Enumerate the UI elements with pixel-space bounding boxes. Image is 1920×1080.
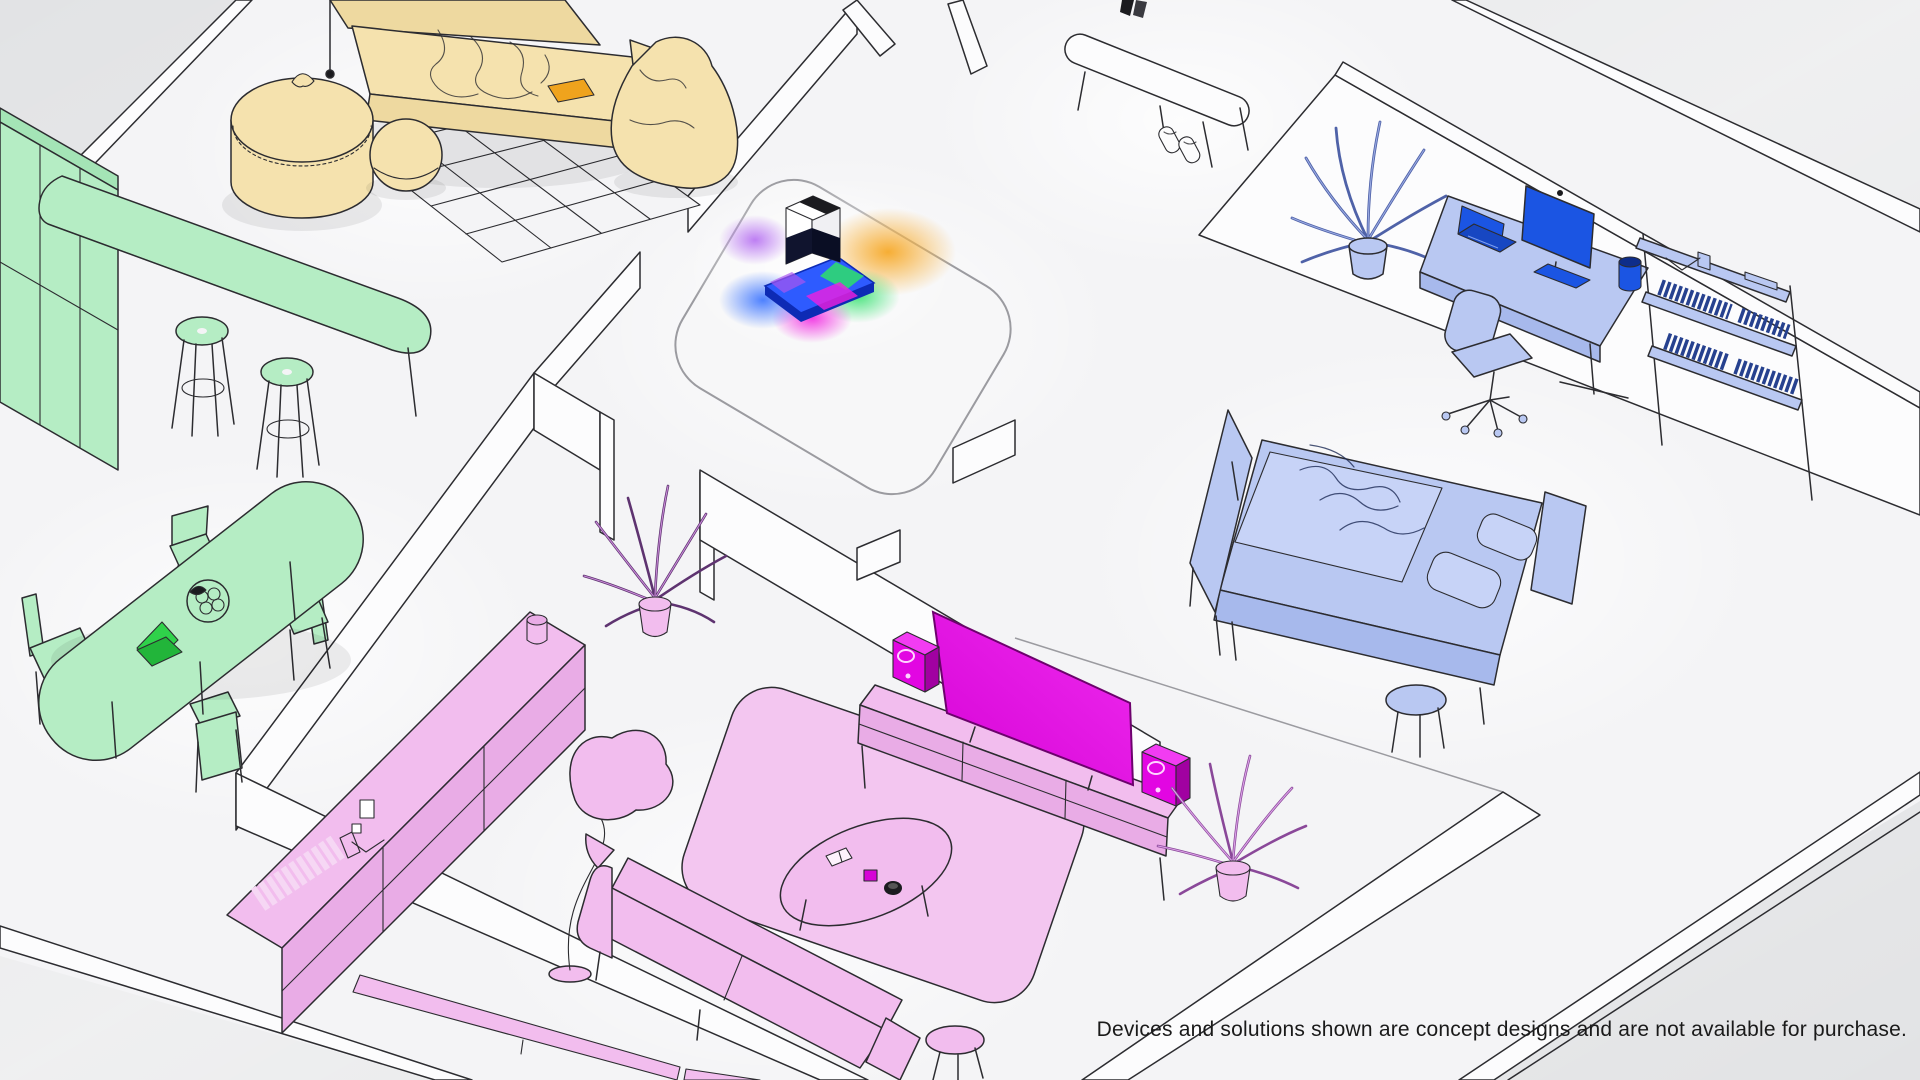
floorplan-illustration: [0, 0, 1920, 1080]
wall-doorjamb-left: [600, 412, 614, 540]
device-tower: [786, 196, 840, 264]
pouf-large: [222, 74, 382, 231]
magenta-cube: [864, 870, 877, 881]
smart-device: [685, 176, 956, 360]
speaker-cylinder: [1619, 257, 1641, 291]
app-window: Devices and solutions shown are concept …: [0, 0, 1920, 1080]
disclaimer-text: Devices and solutions shown are concept …: [1097, 1018, 1907, 1042]
vase: [527, 615, 547, 644]
fruit-bowl: [187, 580, 229, 622]
